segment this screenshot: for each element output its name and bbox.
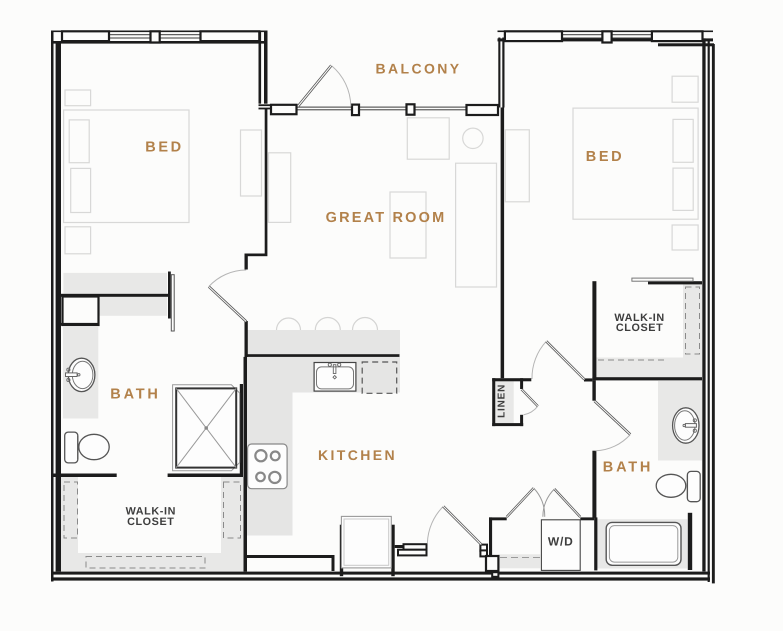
svg-text:BATH: BATH (110, 387, 160, 403)
svg-text:GREAT ROOM: GREAT ROOM (326, 210, 447, 226)
svg-text:BATH: BATH (603, 460, 653, 476)
svg-text:CLOSET: CLOSET (127, 516, 174, 528)
svg-text:BALCONY: BALCONY (375, 61, 461, 77)
svg-text:LINEN: LINEN (496, 384, 507, 418)
svg-text:W/D: W/D (548, 535, 574, 549)
svg-text:BED: BED (145, 140, 183, 156)
svg-text:CLOSET: CLOSET (616, 322, 663, 334)
svg-text:BED: BED (586, 149, 624, 165)
svg-text:KITCHEN: KITCHEN (318, 447, 397, 463)
